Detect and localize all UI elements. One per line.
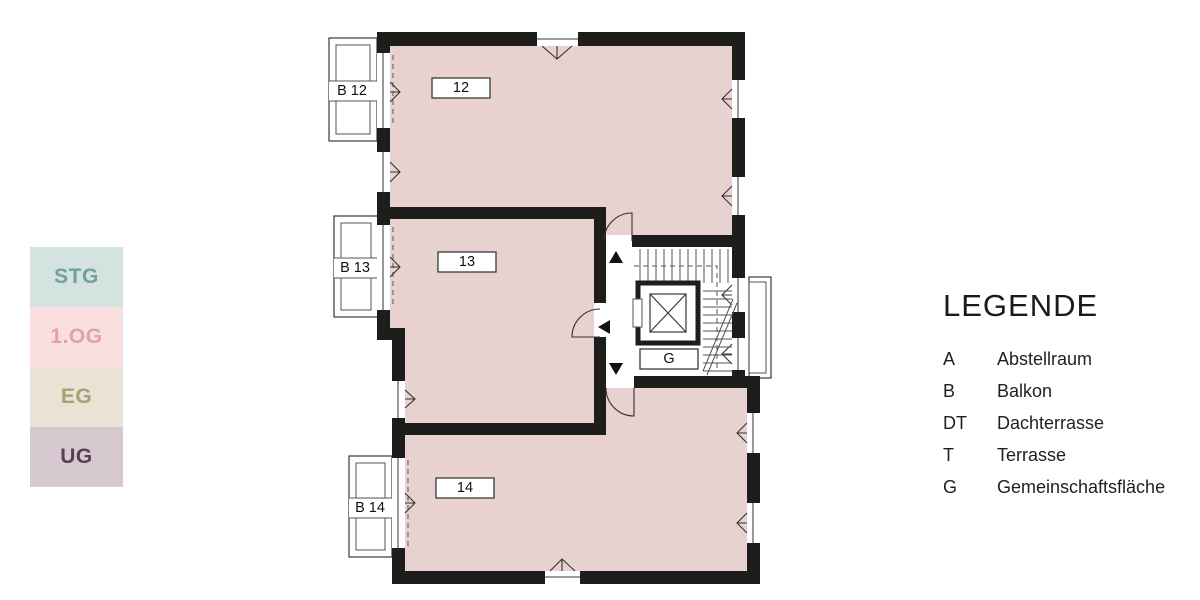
legend-row: T Terrasse	[943, 439, 1165, 471]
page: STG 1.OG EG UG LEGENDE A Abstellraum B B…	[0, 0, 1200, 600]
floor-tab-stg[interactable]: STG	[30, 247, 123, 307]
legend-row: B Balkon	[943, 375, 1165, 407]
elevator	[633, 283, 698, 343]
legend-row: A Abstellraum	[943, 343, 1165, 375]
room-13-label: 13	[459, 254, 475, 270]
floor-tab-eg[interactable]: EG	[30, 367, 123, 427]
legend: LEGENDE A Abstellraum B Balkon DT Dachte…	[943, 288, 1165, 503]
balcony-b12-label: B 12	[337, 83, 367, 99]
legend-abbr: B	[943, 381, 997, 402]
legend-title: LEGENDE	[943, 288, 1165, 324]
door-threshold	[606, 376, 634, 388]
door-threshold	[594, 303, 606, 337]
floor-selector: STG 1.OG EG UG	[30, 247, 123, 487]
room-12-label: 12	[453, 80, 469, 96]
legend-abbr: G	[943, 477, 997, 498]
floor-tab-ug[interactable]: UG	[30, 427, 123, 487]
balcony-b14-label: B 14	[355, 500, 385, 516]
common-area-label: G	[663, 351, 674, 367]
legend-term: Balkon	[997, 381, 1052, 402]
legend-term: Abstellraum	[997, 349, 1092, 370]
legend-term: Terrasse	[997, 445, 1066, 466]
floor-tab-1og[interactable]: 1.OG	[30, 307, 123, 367]
legend-row: DT Dachterrasse	[943, 407, 1165, 439]
legend-row: G Gemeinschaftsfläche	[943, 471, 1165, 503]
legend-abbr: A	[943, 349, 997, 370]
room-14-label: 14	[457, 480, 473, 496]
floor-plan: 12 13 14 G B 12 B 13 B 14	[325, 24, 777, 590]
stairwell-landing	[749, 277, 771, 378]
legend-term: Dachterrasse	[997, 413, 1104, 434]
legend-abbr: DT	[943, 413, 997, 434]
legend-abbr: T	[943, 445, 997, 466]
legend-term: Gemeinschaftsfläche	[997, 477, 1165, 498]
balcony-b13-label: B 13	[340, 260, 370, 276]
